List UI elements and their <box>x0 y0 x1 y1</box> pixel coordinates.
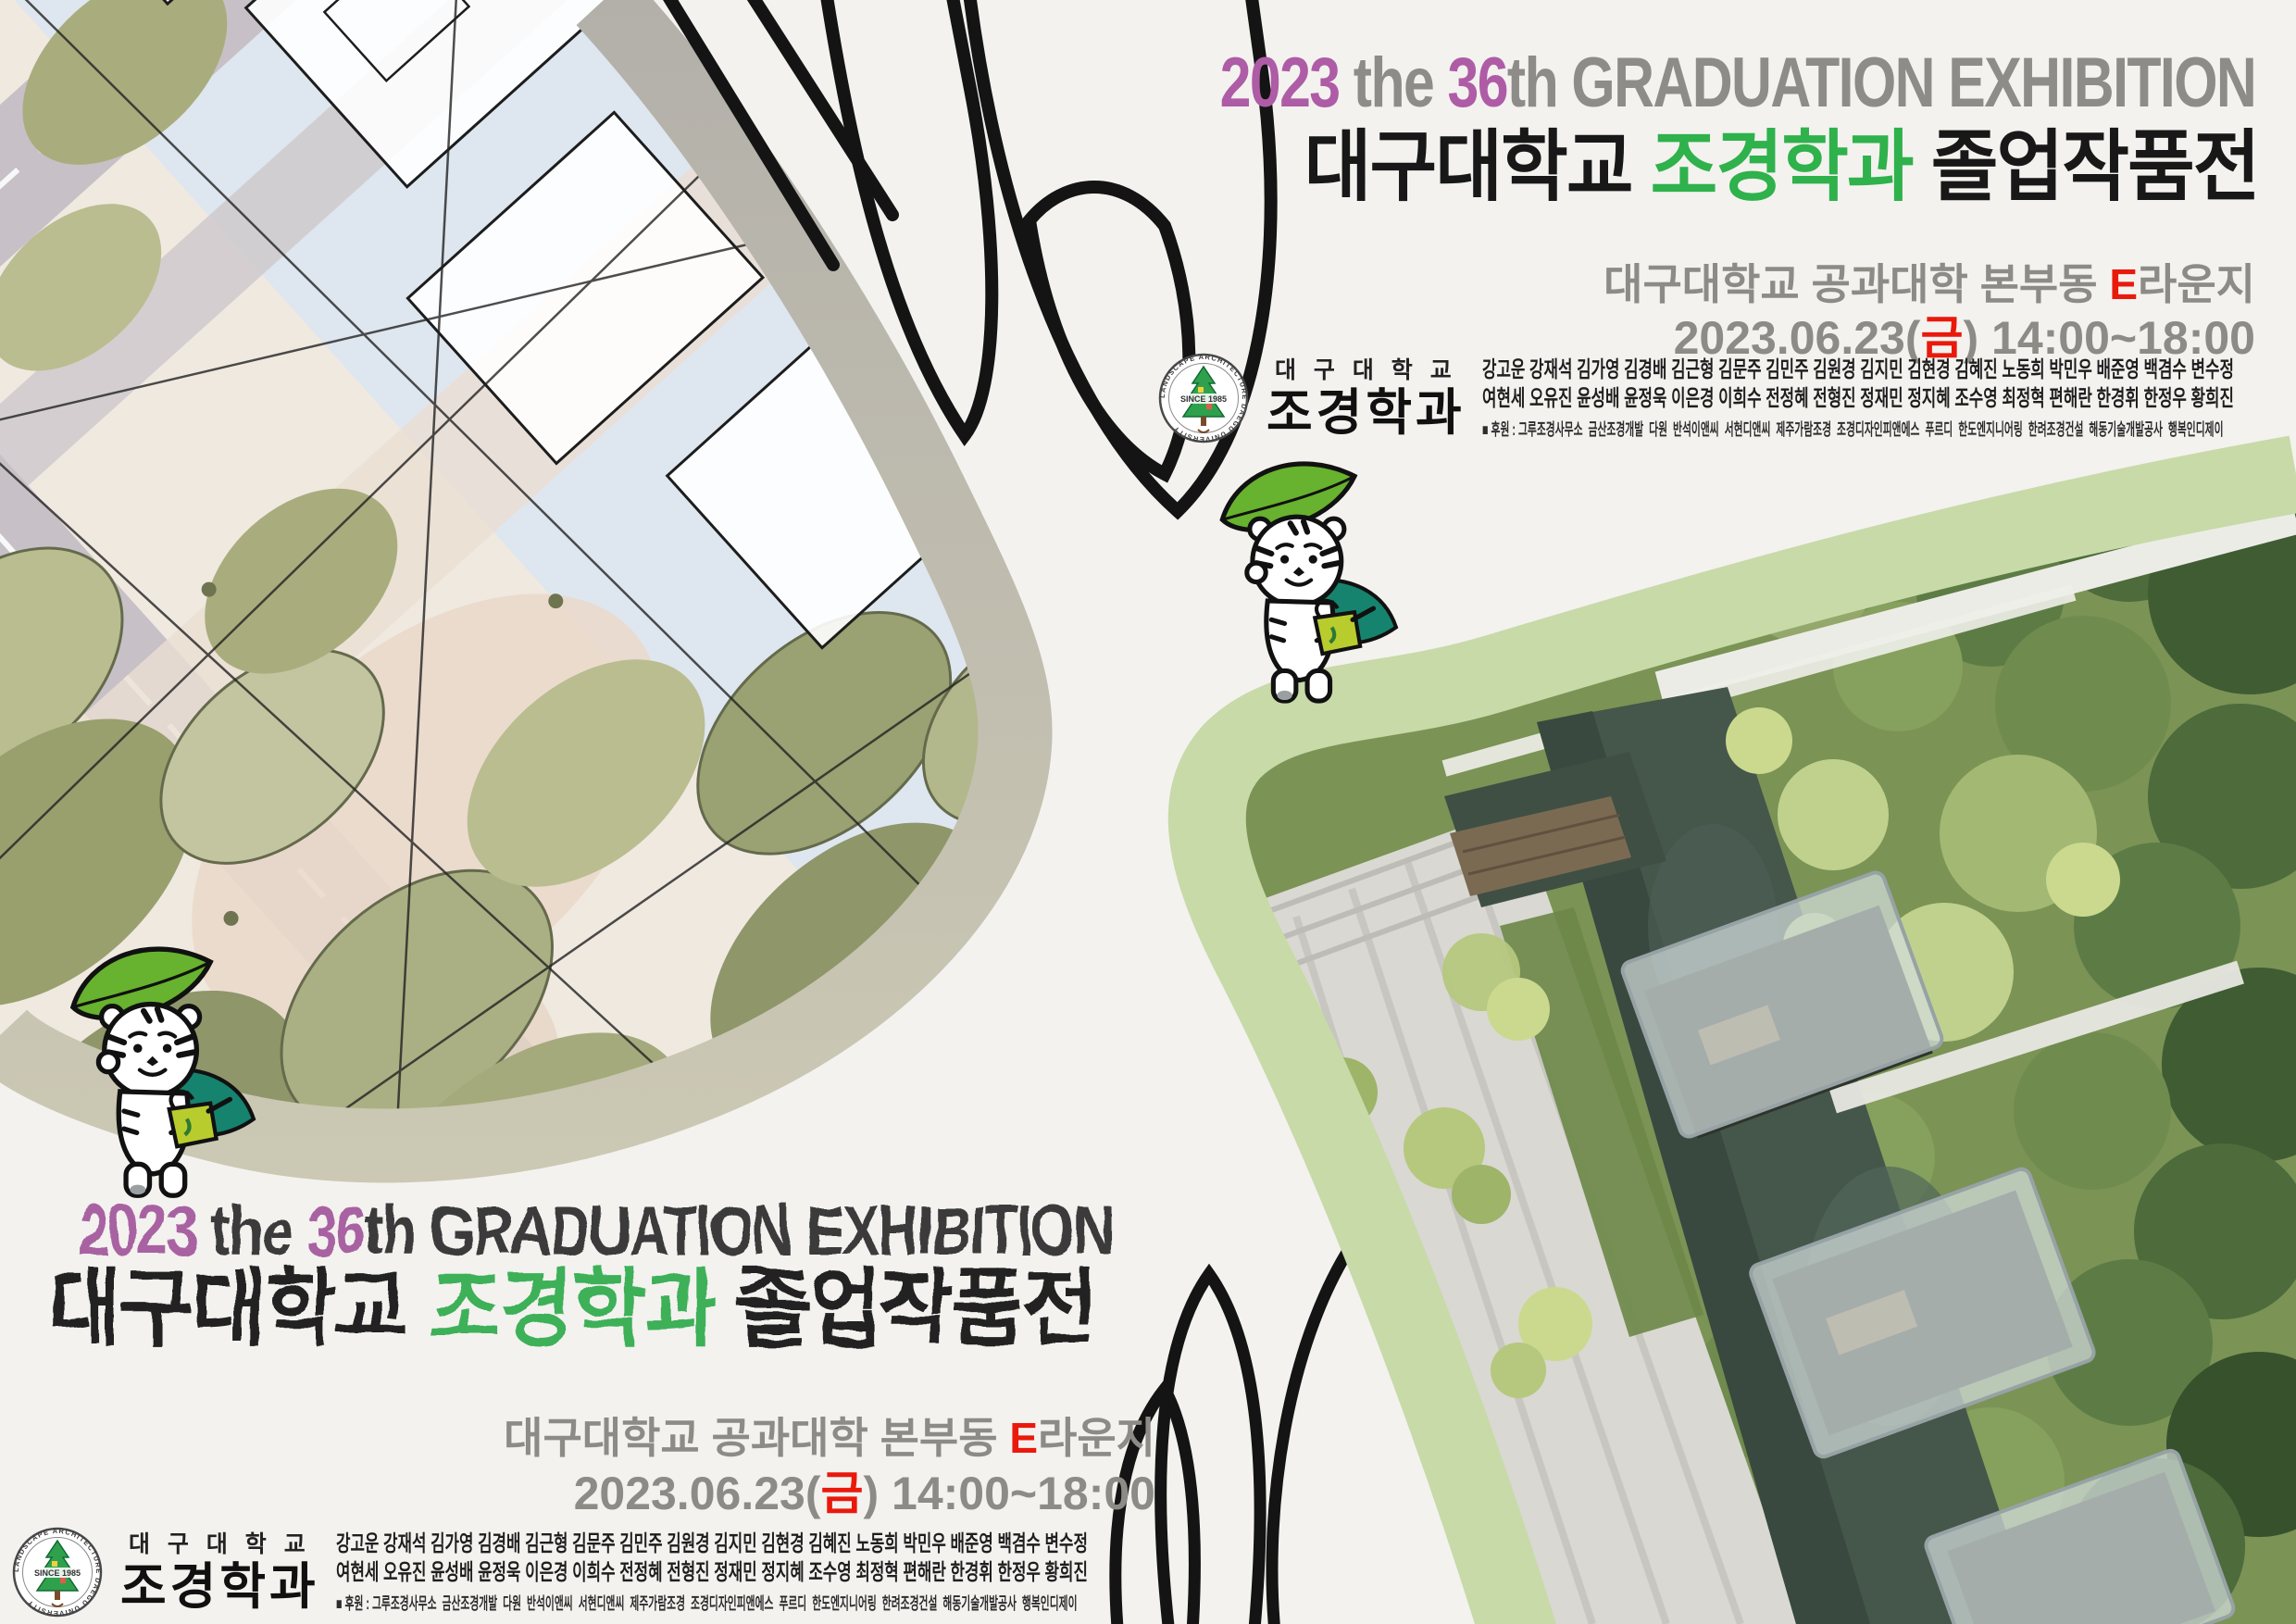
department-highlight: 조경학과 <box>1651 123 1913 210</box>
title-edition-number: 36 <box>1447 44 1506 122</box>
poster-title-korean-top: 대구대학교 조경학과 졸업작품전 <box>1243 128 2259 206</box>
poster-title-korean-bottom: 대구대학교 조경학과 졸업작품전 <box>48 1267 1163 1352</box>
credit-row-bottom: 대 구 대 학 교 조경학과 강고운 강재석 김가영 김경배 김근형 김문주 김… <box>11 1526 1145 1618</box>
title-year: 2023 <box>1219 44 1339 122</box>
department-name: 조경학과 <box>1267 386 1466 441</box>
exhibition-poster: LANDSCAPE ARCHITECTURE DAEGU UNIVERSITY … <box>0 0 2296 1624</box>
poster-title-english-top: 2023 the 36th GRADUATION EXHIBITION <box>961 48 2255 119</box>
department-emblem-icon <box>1157 352 1250 444</box>
department-name-block: 대 구 대 학 교 조경학과 <box>120 1530 319 1615</box>
date-line-bottom: 2023.06.23(금) 14:00~18:00 <box>37 1470 1155 1517</box>
participants-block: 강고운 강재석 김가영 김경배 김근형 김문주 김민주 김원경 김지민 김현경 … <box>1482 356 2277 441</box>
sponsors-line: ■ 후원 : 그루조경사무소 금산조경개발 다원 반석이앤씨 서현디앤씨 제주가… <box>1482 417 1960 441</box>
venue-line-top: 대구대학교 공과대학 본부동 E라운지 <box>1603 263 2255 306</box>
poster-title-english-bottom: 2023 the 36th GRADUATION EXHIBITION <box>78 1196 1372 1267</box>
participants-block: 강고운 강재석 김가영 김경배 김근형 김문주 김민주 김원경 김지민 김현경 … <box>336 1530 1145 1615</box>
department-name-block: 대 구 대 학 교 조경학과 <box>1267 356 1466 441</box>
participants-line: 강고운 강재석 김가영 김경배 김근형 김문주 김민주 김원경 김지민 김현경 … <box>1482 356 2039 384</box>
credit-row-top: 대 구 대 학 교 조경학과 강고운 강재석 김가영 김경배 김근형 김문주 김… <box>1157 352 2277 444</box>
department-emblem-icon <box>11 1526 104 1618</box>
venue-line-bottom: 대구대학교 공과대학 본부동 E라운지 <box>37 1417 1155 1459</box>
university-name: 대 구 대 학 교 <box>1267 356 1466 386</box>
participants-line: 여현세 오유진 윤성배 윤정욱 이은경 이희수 전정혜 전형진 정재민 정지혜 … <box>1482 384 2039 413</box>
